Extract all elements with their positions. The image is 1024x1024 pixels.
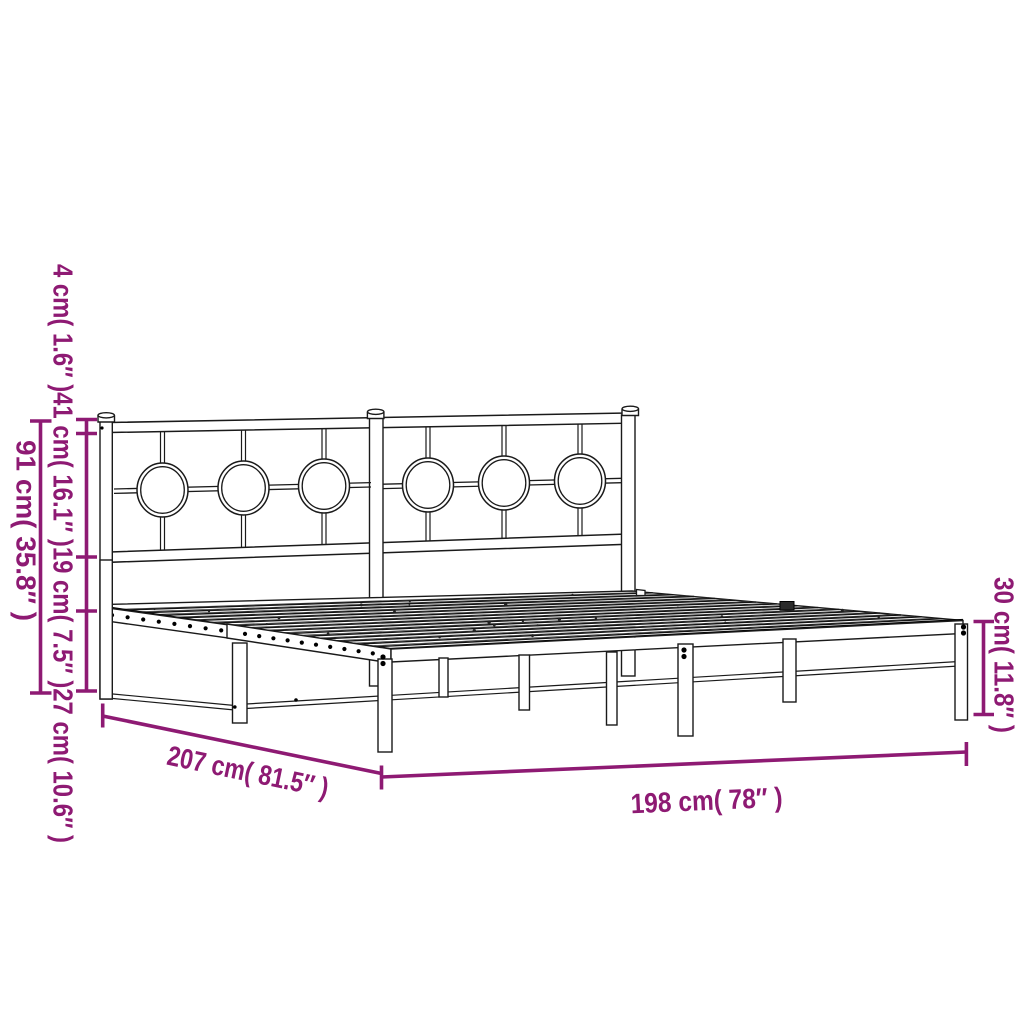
svg-text:4 cm( 1.6″ )41 cm( 16.1″ )19: 4 cm( 1.6″ )41 cm( 16.1″ )19 cm( 7.5″ )2… — [48, 264, 79, 843]
svg-text:30 cm( 11.8″ ): 30 cm( 11.8″ ) — [989, 577, 1020, 733]
svg-text:91 cm( 35.8″ ): 91 cm( 35.8″ ) — [11, 440, 42, 621]
svg-text:198 cm( 78″ ): 198 cm( 78″ ) — [630, 782, 783, 820]
